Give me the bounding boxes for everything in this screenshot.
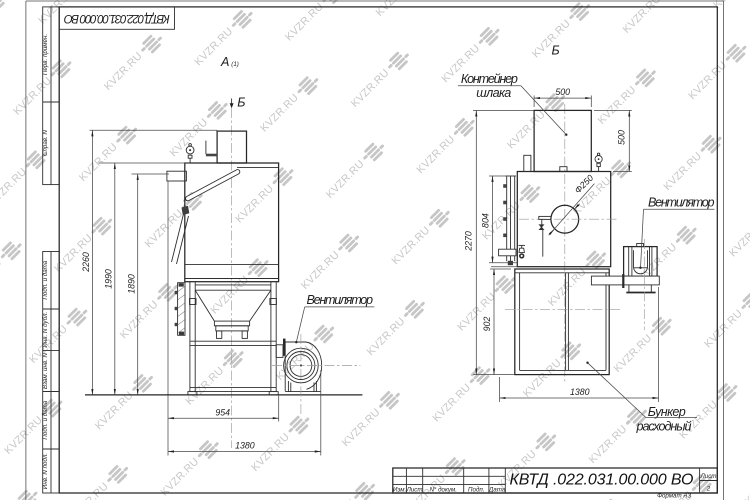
svg-text:2270: 2270 bbox=[463, 231, 473, 252]
svg-text:Взам. инв. N: Взам. инв. N bbox=[42, 352, 49, 389]
svg-text:Вентилятор: Вентилятор bbox=[307, 293, 374, 307]
svg-text:(1): (1) bbox=[231, 61, 239, 68]
svg-text:Б: Б bbox=[237, 95, 245, 109]
svg-text:Контейнер: Контейнер bbox=[461, 72, 518, 86]
svg-text:2: 2 bbox=[706, 486, 711, 493]
svg-text:Перв. примен.: Перв. примен. bbox=[42, 34, 49, 75]
svg-text:954: 954 bbox=[215, 407, 230, 417]
svg-text:Изм.: Изм. bbox=[393, 486, 406, 493]
svg-text:Инв. N дубл.: Инв. N дубл. bbox=[42, 312, 49, 348]
svg-text:Подп. и дата: Подп. и дата bbox=[42, 400, 49, 439]
svg-text:Вентилятор: Вентилятор bbox=[648, 196, 715, 210]
svg-text:Бункер: Бункер bbox=[648, 405, 686, 419]
svg-text:1380: 1380 bbox=[570, 387, 590, 397]
svg-text:КВТД.022.031.00.000 ВО: КВТД.022.031.00.000 ВО bbox=[64, 12, 170, 24]
svg-text:1890: 1890 bbox=[127, 274, 137, 294]
svg-text:1990: 1990 bbox=[104, 269, 114, 289]
svg-text:Формат А3: Формат А3 bbox=[657, 493, 691, 500]
svg-text:Подп. и дата: Подп. и дата bbox=[42, 260, 49, 299]
svg-text:Дата: Дата bbox=[488, 486, 506, 493]
svg-text:902: 902 bbox=[482, 317, 492, 332]
svg-text:N° докум.: N° докум. bbox=[429, 486, 457, 493]
svg-text:Б: Б bbox=[552, 43, 560, 57]
svg-text:Справ. N: Справ. N bbox=[42, 130, 49, 156]
svg-text:1380: 1380 bbox=[235, 441, 255, 451]
svg-text:500: 500 bbox=[617, 130, 627, 145]
svg-text:Лист: Лист bbox=[700, 473, 717, 480]
svg-text:500: 500 bbox=[555, 87, 570, 97]
svg-text:расходный: расходный bbox=[636, 419, 692, 433]
svg-text:А: А bbox=[220, 55, 229, 69]
svg-text:Лист: Лист bbox=[406, 486, 423, 493]
svg-text:Инв. N подл.: Инв. N подл. bbox=[42, 453, 49, 489]
svg-text:804: 804 bbox=[480, 213, 490, 228]
svg-text:КВТД .022.031.00.000 ВО: КВТД .022.031.00.000 ВО bbox=[510, 471, 694, 488]
svg-text:Подп.: Подп. bbox=[468, 486, 484, 493]
svg-text:шлака: шлака bbox=[476, 86, 511, 100]
svg-text:2260: 2260 bbox=[81, 252, 91, 273]
